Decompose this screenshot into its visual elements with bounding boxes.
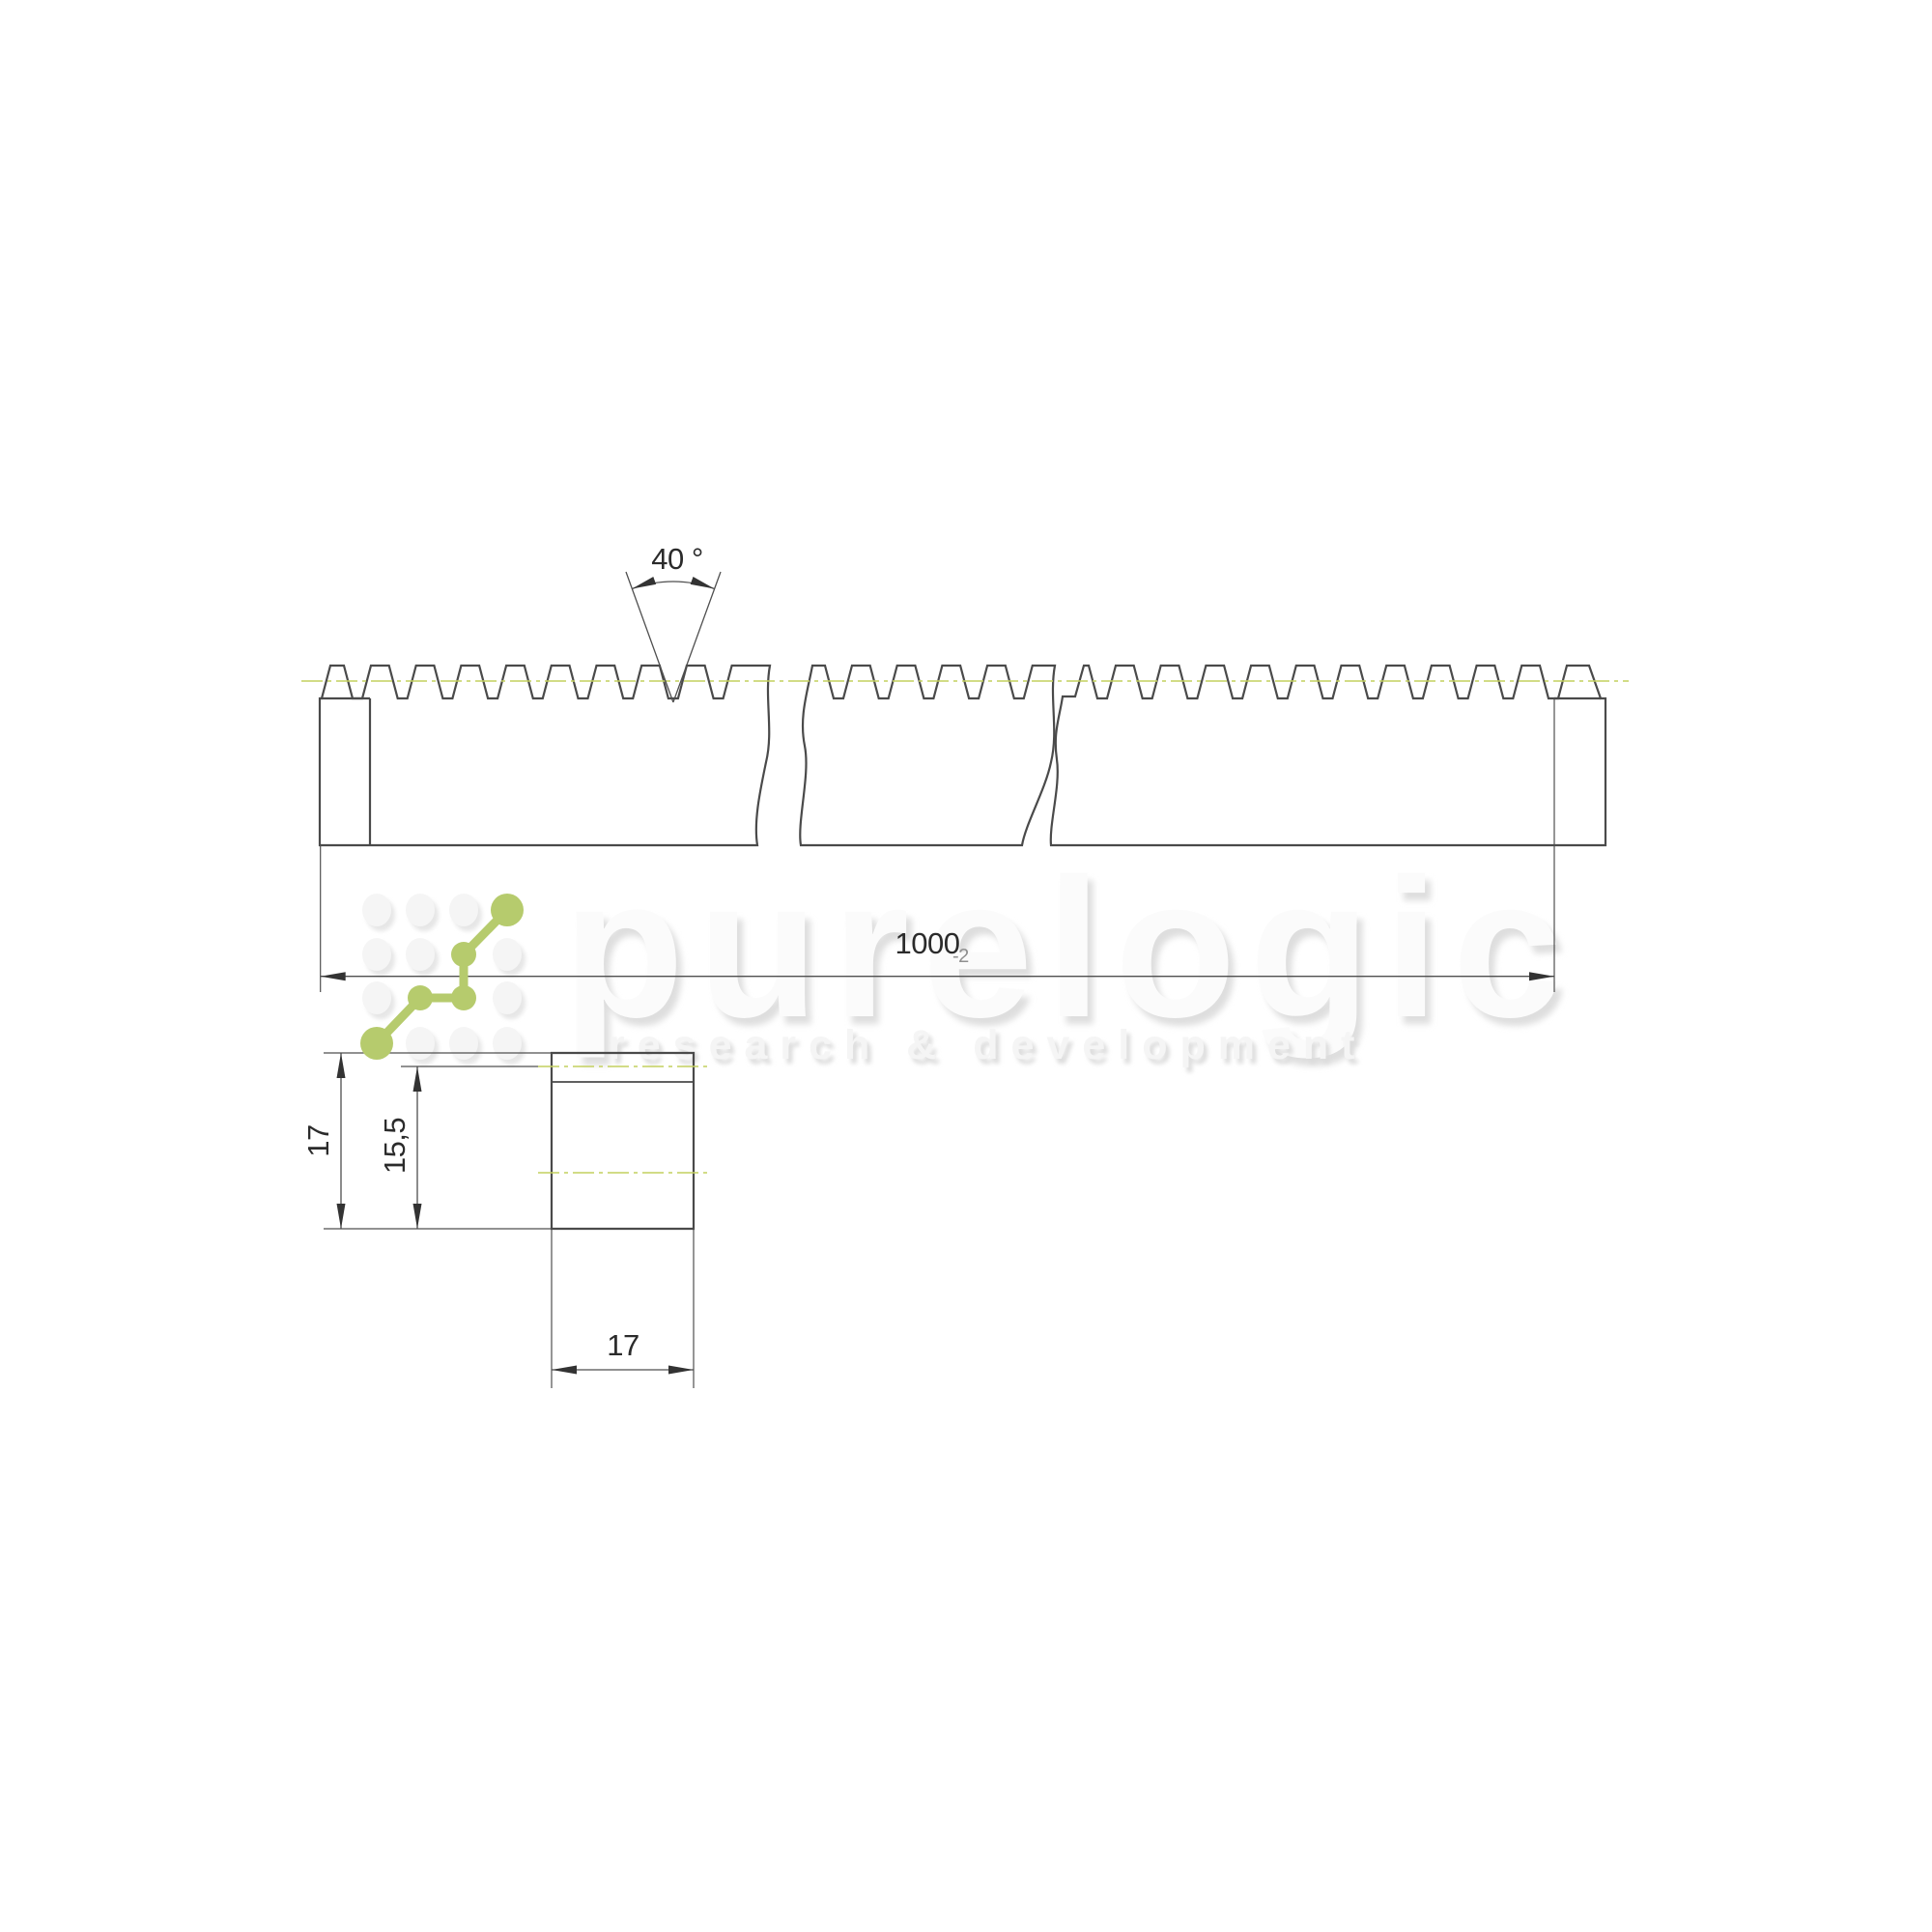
rack-segment-2-outline (800, 666, 1055, 845)
angle-dimension-label: 40 ° (651, 542, 703, 576)
watermark-tagline: research & development (609, 1022, 1367, 1068)
pitch-height-arrow-bottom (413, 1204, 422, 1229)
height-dimension-label: 17 (301, 1124, 335, 1156)
logo-chain-dot-2 (408, 985, 433, 1010)
pitch-height-dimension-15-5: 15,5 (378, 1066, 422, 1229)
logo-chain-dot-1 (360, 1027, 393, 1060)
width-arrow-right (668, 1366, 694, 1375)
angle-dimension-40deg: 40 ° (626, 542, 721, 702)
drawing-page: purelogic purelogic research & developme… (0, 0, 1932, 1932)
section-outline (552, 1053, 694, 1229)
width-dimension-17: 17 (552, 1328, 694, 1375)
angle-arrow-left (632, 577, 656, 589)
height-dimension-17: 17 (301, 1053, 346, 1229)
rack-segment-3-outline (1051, 666, 1605, 845)
rack-section-view: 17 15,5 17 (301, 1053, 708, 1388)
length-tolerance-label: -2 (952, 946, 969, 967)
angle-arrow-right (691, 577, 715, 589)
watermark: purelogic purelogic research & developme… (362, 838, 1582, 1073)
width-arrow-left (552, 1366, 577, 1375)
length-arrow-left (321, 972, 346, 980)
rack-segment-1-outline (320, 666, 770, 845)
height-arrow-top (337, 1053, 346, 1078)
logo-chain-dot-3 (451, 985, 476, 1010)
rack-left-end-block (322, 698, 370, 845)
logo-chain-dot-4 (451, 942, 476, 967)
technical-drawing-canvas: purelogic purelogic research & developme… (0, 0, 1932, 1932)
pitch-height-arrow-top (413, 1066, 422, 1092)
length-dimension-label: 1000 (895, 926, 960, 960)
logo-chain-dot-5 (491, 894, 524, 926)
pitch-height-dimension-label: 15,5 (378, 1118, 412, 1174)
height-arrow-bottom (337, 1204, 346, 1229)
rack-side-view (320, 666, 1605, 845)
width-dimension-label: 17 (607, 1328, 639, 1362)
